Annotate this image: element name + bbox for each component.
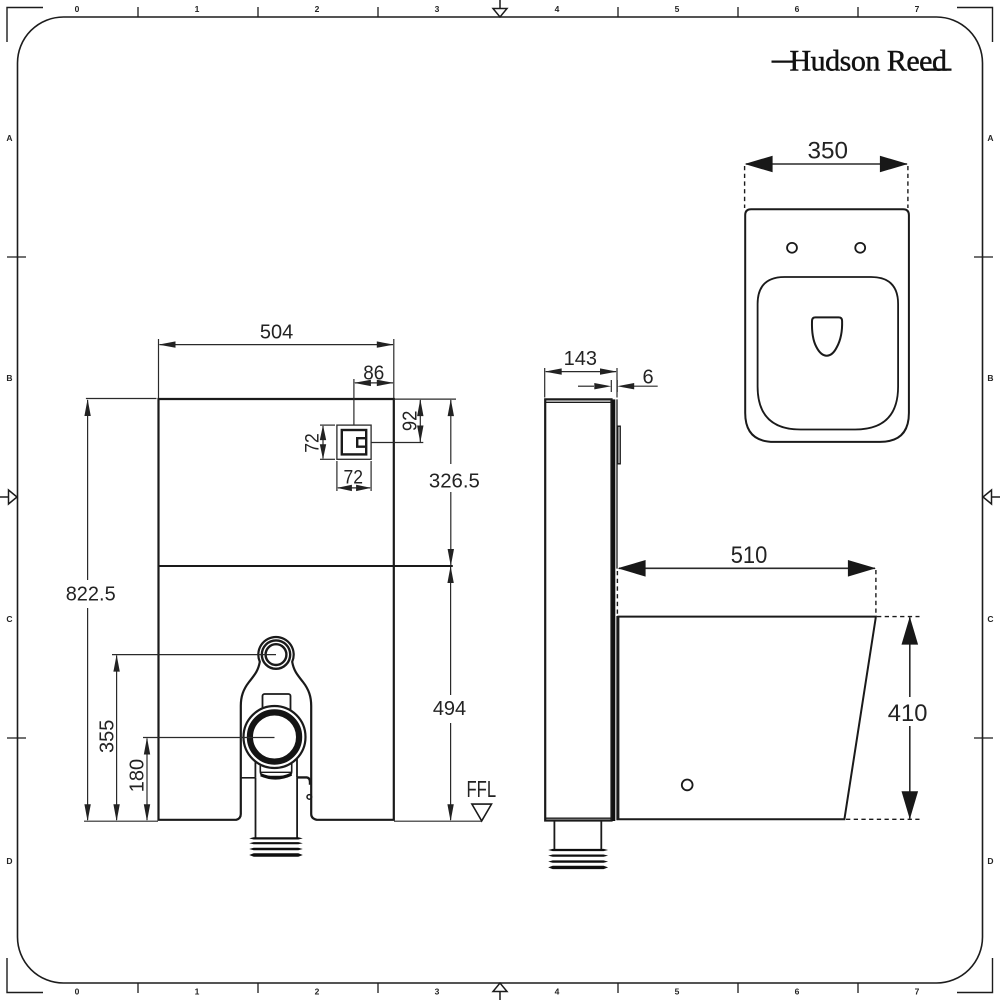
svg-text:326.5: 326.5 [429, 471, 480, 493]
svg-text:350: 350 [808, 137, 849, 164]
svg-text:4: 4 [555, 987, 560, 997]
svg-text:B: B [987, 373, 993, 383]
svg-text:5: 5 [675, 4, 680, 14]
svg-text:7: 7 [915, 987, 920, 997]
svg-text:92: 92 [400, 411, 422, 432]
svg-text:3: 3 [435, 987, 440, 997]
svg-text:A: A [987, 133, 993, 143]
svg-text:822.5: 822.5 [66, 583, 116, 605]
svg-text:6: 6 [795, 987, 800, 997]
svg-text:510: 510 [731, 542, 768, 569]
svg-text:6: 6 [642, 366, 653, 388]
svg-text:D: D [987, 856, 993, 866]
svg-text:D: D [6, 856, 12, 866]
svg-text:Hudson Reed: Hudson Reed [790, 45, 947, 78]
svg-text:2: 2 [315, 4, 320, 14]
svg-text:1: 1 [195, 987, 200, 997]
svg-text:3: 3 [435, 4, 440, 14]
svg-text:5: 5 [675, 987, 680, 997]
svg-text:C: C [6, 614, 12, 624]
svg-text:494: 494 [433, 698, 466, 720]
svg-text:A: A [6, 133, 12, 143]
svg-text:0: 0 [75, 4, 80, 14]
svg-text:72: 72 [344, 468, 364, 489]
svg-text:FFL: FFL [467, 776, 497, 802]
svg-text:143: 143 [564, 348, 597, 370]
svg-text:7: 7 [915, 4, 920, 14]
svg-text:1: 1 [195, 4, 200, 14]
svg-text:410: 410 [888, 700, 928, 727]
svg-text:C: C [987, 614, 993, 624]
svg-text:B: B [6, 373, 12, 383]
svg-text:86: 86 [363, 363, 384, 385]
svg-text:72: 72 [302, 433, 323, 453]
svg-text:4: 4 [555, 4, 560, 14]
svg-text:0: 0 [75, 987, 80, 997]
svg-text:180: 180 [127, 759, 149, 792]
svg-text:6: 6 [795, 4, 800, 14]
svg-text:355: 355 [97, 720, 119, 753]
svg-text:2: 2 [315, 987, 320, 997]
svg-text:504: 504 [260, 322, 293, 344]
